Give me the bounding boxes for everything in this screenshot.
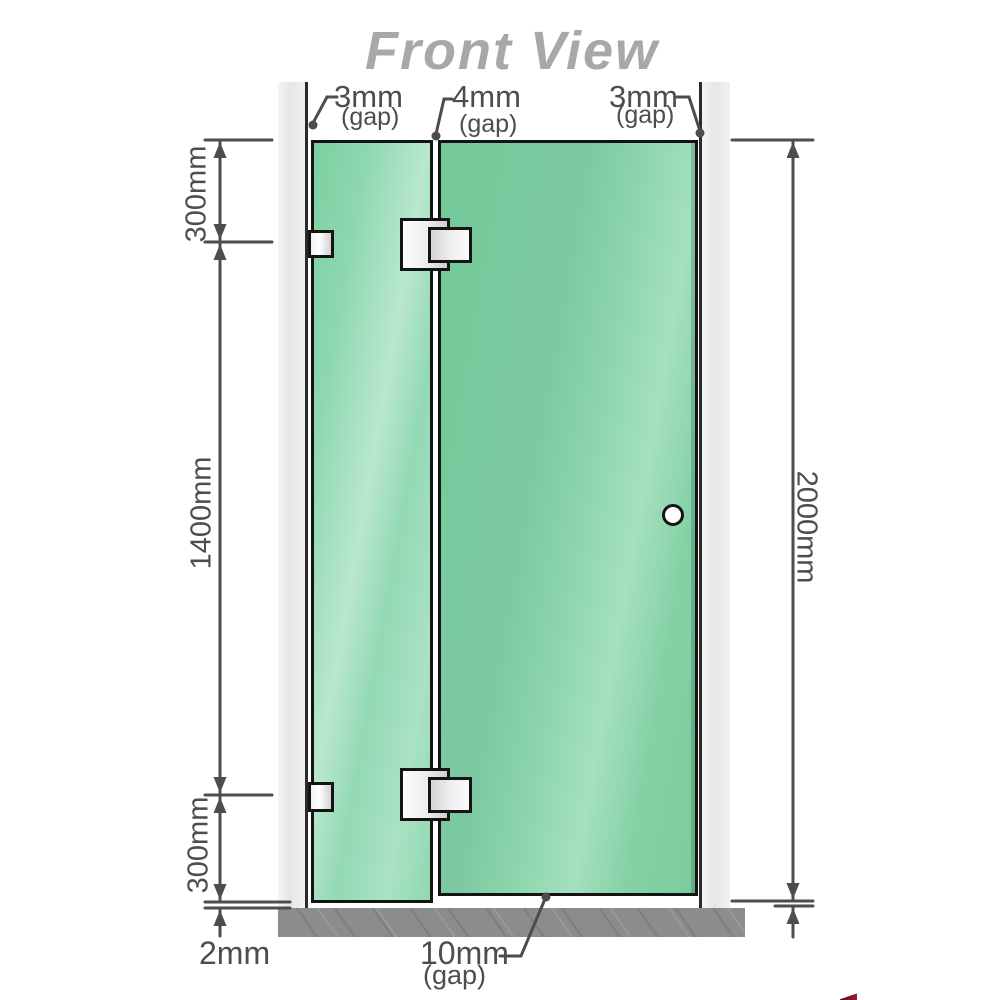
- center-gap-sub: (gap): [459, 112, 517, 137]
- door-bottom-gap-sub: (gap): [423, 962, 486, 989]
- hinge-right-plate: [428, 777, 472, 813]
- corner-watermark: [840, 993, 857, 1000]
- wall-bracket-top: [308, 230, 334, 258]
- diagram-title: Front View: [365, 24, 659, 78]
- top-right-gap-sub: (gap): [616, 103, 674, 128]
- lower-height-label: 300mm: [185, 797, 214, 894]
- right-wall: [699, 82, 730, 908]
- top-left-gap-sub: (gap): [341, 105, 399, 130]
- center-gap-label: 4mm: [452, 81, 521, 112]
- front-view-diagram: Front View: [0, 0, 1000, 1000]
- floor-thickness-label: 2mm: [199, 937, 270, 969]
- total-height-label: 2000mm: [792, 471, 821, 584]
- door-knob: [662, 504, 684, 526]
- left-wall: [278, 82, 308, 908]
- middle-height-label: 1400mm: [188, 457, 217, 570]
- door-glass-panel: [438, 140, 698, 896]
- floor-base: [278, 908, 745, 937]
- wall-bracket-bottom: [308, 782, 334, 812]
- upper-height-label: 300mm: [183, 146, 212, 243]
- hinge-right-plate: [428, 227, 472, 263]
